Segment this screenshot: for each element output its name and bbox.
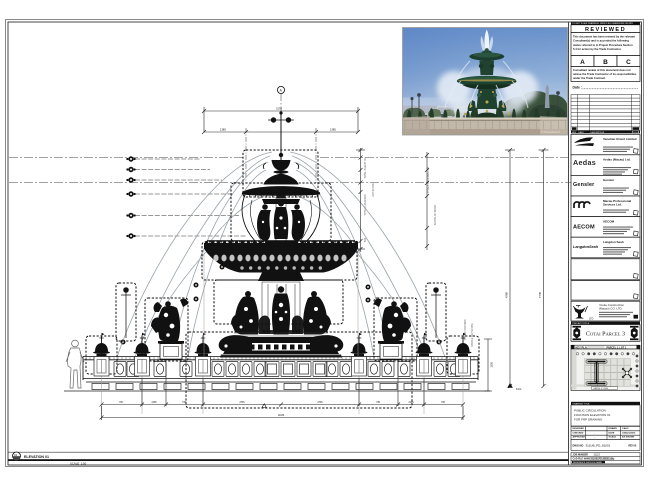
- svg-text:Consultant review of this docu: Consultant review of this document does …: [573, 68, 631, 72]
- svg-text:311UB_PD_81001: 311UB_PD_81001: [586, 444, 611, 448]
- svg-text:(Macau) CO. LTD.: (Macau) CO. LTD.: [599, 307, 623, 311]
- svg-text:REV B: REV B: [629, 444, 637, 448]
- svg-text:DRAWN: DRAWN: [609, 427, 618, 430]
- svg-text:DATE: DATE: [579, 131, 585, 134]
- svg-text:Date :: Date :: [573, 86, 582, 90]
- svg-text:DATE: DATE: [609, 431, 615, 434]
- svg-text:10/AUG/2016: 10/AUG/2016: [622, 431, 636, 434]
- svg-text:1385: 1385: [220, 128, 226, 132]
- svg-text:DWG NO: DWG NO: [573, 444, 584, 448]
- svg-text:FRP SCOPE: FRP SCOPE: [372, 183, 375, 197]
- svg-text:PARCEL 3 1:2000: PARCEL 3 1:2000: [594, 387, 608, 390]
- svg-text:CAHO: CAHO: [622, 427, 629, 430]
- svg-text:1385: 1385: [330, 128, 336, 132]
- svg-text:FOUNTAIN ELEVATION 01: FOUNTAIN ELEVATION 01: [574, 413, 611, 417]
- svg-text:AECOM: AECOM: [573, 225, 595, 231]
- svg-text:B: B: [603, 59, 608, 66]
- svg-text:Services Ltd.: Services Ltd.: [603, 203, 622, 207]
- svg-text:AECOM: AECOM: [603, 219, 615, 223]
- svg-text:status referred to in Project: status referred to in Project Procedure …: [573, 43, 633, 47]
- svg-text:under the Trade Contract.: under the Trade Contract.: [573, 76, 606, 80]
- svg-text:TYPE B FOUNTAIN: TYPE B FOUNTAIN: [464, 319, 467, 340]
- svg-text:3170: 3170: [276, 107, 282, 111]
- svg-text:LangdonSeah: LangdonSeah: [573, 245, 599, 249]
- svg-text:AS SHOWN: AS SHOWN: [622, 436, 634, 439]
- svg-text:2165: 2165: [151, 402, 157, 404]
- svg-text:TOTAL HEIGHT OF: TOTAL HEIGHT OF: [364, 157, 367, 179]
- svg-text:C: C: [626, 59, 631, 66]
- svg-text:Consultant(s) and is accorded: Consultant(s) and is accorded the follow…: [573, 39, 629, 43]
- svg-text:TYPE A FOUNTAIN: TYPE A FOUNTAIN: [364, 194, 367, 215]
- svg-text:840: 840: [364, 237, 367, 242]
- svg-text:ELEVATION 01: ELEVATION 01: [24, 455, 49, 459]
- svg-text:2165: 2165: [408, 402, 414, 404]
- svg-text:11030: 11030: [278, 415, 285, 417]
- svg-text:STATUE FRP SCOPE: STATUE FRP SCOPE: [471, 323, 474, 347]
- svg-text:© PhotosParis.fr: © PhotosParis.fr: [541, 130, 560, 134]
- svg-text:01: 01: [14, 453, 18, 457]
- svg-text:Venetian Orient Limited: Venetian Orient Limited: [603, 137, 637, 141]
- svg-text:CHECKED: CHECKED: [573, 432, 584, 434]
- svg-text:1500: 1500: [491, 362, 494, 368]
- svg-text:SCALE: SCALE: [609, 436, 617, 439]
- svg-text:2745: 2745: [239, 402, 245, 404]
- svg-text:APPROVED: APPROVED: [573, 436, 586, 439]
- svg-text:Gensler: Gensler: [573, 182, 595, 188]
- svg-text:2745: 2745: [317, 402, 323, 404]
- svg-text:SCALE 1:50: SCALE 1:50: [70, 462, 87, 466]
- svg-text:Gensler: Gensler: [603, 178, 615, 182]
- svg-text:relieve the Trade Contracto: relieve the Trade Contractor of its resp…: [573, 72, 637, 76]
- svg-text:DESCRIPTION: DESCRIPTION: [591, 132, 605, 134]
- svg-text:7745: 7745: [538, 291, 542, 298]
- svg-text:SCOPE OF WORK: SCOPE OF WORK: [434, 204, 437, 225]
- svg-text:REFERENCE DWG FILE NAME: REFERENCE DWG FILE NAME: [573, 461, 603, 464]
- svg-text:Langdon Seah: Langdon Seah: [603, 240, 624, 244]
- svg-text:Aedas (Macau) Ltd.: Aedas (Macau) Ltd.: [603, 158, 631, 162]
- svg-text:F.F.L.: F.F.L.: [516, 387, 523, 391]
- svg-text:TYPE A FOUNTAIN FRP: TYPE A FOUNTAIN FRP: [427, 166, 430, 193]
- svg-text:FOR FRP DRAWING: FOR FRP DRAWING: [574, 418, 603, 422]
- svg-text:REVIEWED: REVIEWED: [585, 27, 626, 33]
- svg-text:A: A: [580, 59, 585, 66]
- svg-text:DESIGNED: DESIGNED: [573, 428, 585, 430]
- svg-text:This document has been reviwed: This document has been reviwed by the re…: [573, 35, 635, 39]
- svg-text:Aedas: Aedas: [573, 158, 596, 167]
- svg-text:REV: REV: [572, 132, 577, 134]
- svg-text:5.4 for action by the Trade C: 5.4 for action by the Trade Contractor.: [573, 47, 622, 51]
- svg-text:PUBLIC CIRCULATION: PUBLIC CIRCULATION: [574, 409, 606, 413]
- svg-text:LTD: LTD: [589, 318, 594, 321]
- svg-text:4780: 4780: [505, 291, 509, 298]
